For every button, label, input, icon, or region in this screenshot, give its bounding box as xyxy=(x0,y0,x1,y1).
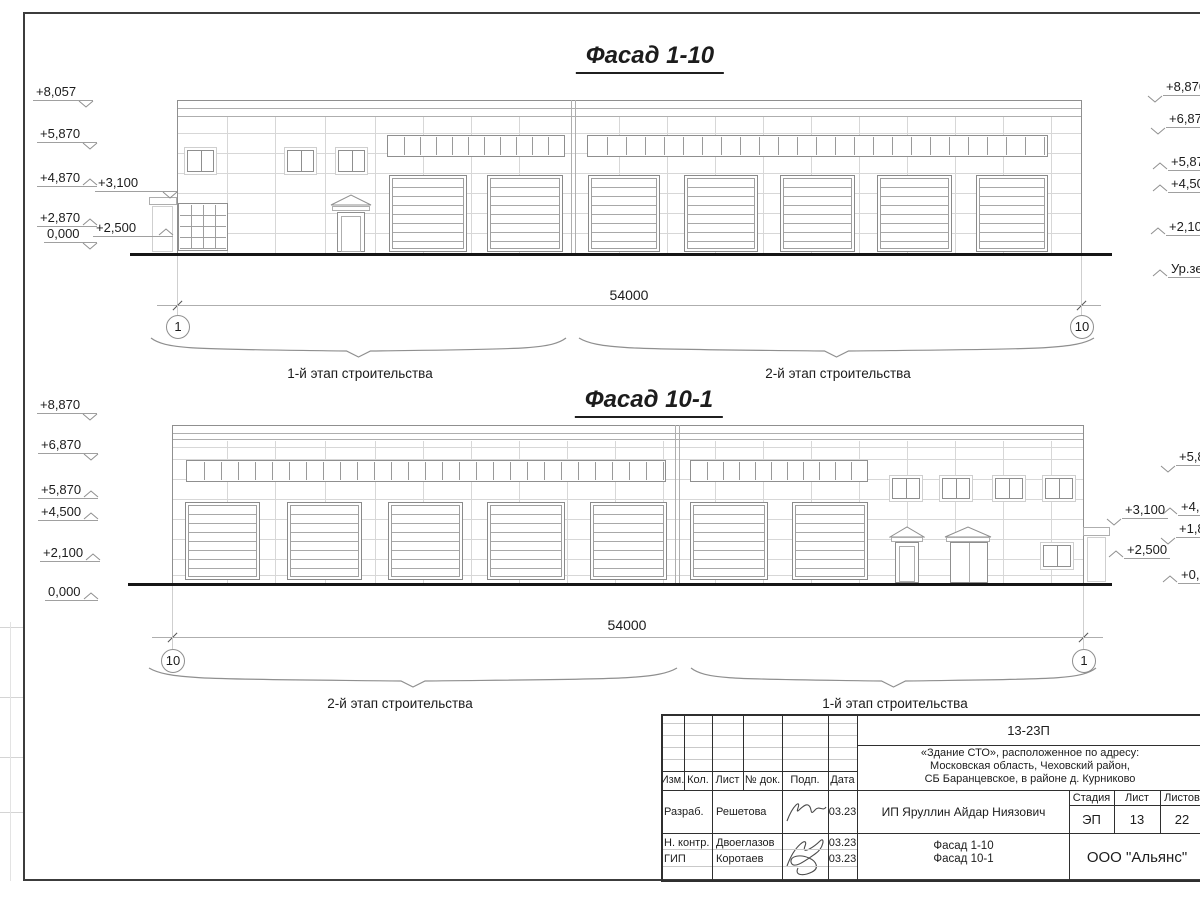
door-leaf xyxy=(899,546,915,582)
row-role: Разраб. xyxy=(664,804,711,820)
door-head xyxy=(332,206,370,211)
facade-1-10-title: Фасад 1-10 xyxy=(576,42,724,74)
window-mullion xyxy=(1059,479,1060,498)
row-name: Коротаев xyxy=(716,851,780,867)
porch xyxy=(1087,537,1106,582)
ground-line xyxy=(128,583,1112,586)
ribbon-panes xyxy=(389,137,563,155)
window-mullion xyxy=(956,479,957,498)
window-mullion xyxy=(352,151,353,171)
door-pediment-icon xyxy=(330,194,372,206)
window-mullion xyxy=(1057,546,1058,566)
ribbon-panes xyxy=(188,462,664,480)
row-date: 03.23 xyxy=(828,851,857,867)
expansion-joint xyxy=(675,425,676,583)
garage-door-slats xyxy=(880,178,949,249)
titleblock-code: 13-23П xyxy=(857,716,1200,744)
level-arrow-down-icon xyxy=(82,142,98,150)
level-mark: +2,100 xyxy=(40,546,100,562)
col-kol: Кол. xyxy=(684,772,712,789)
stage-label: Стадия xyxy=(1069,792,1114,805)
level-arrow-down-icon xyxy=(1147,95,1163,103)
row-name: Решетова xyxy=(716,804,780,820)
garage-door-slats xyxy=(188,505,257,577)
level-arrow-down-icon xyxy=(1106,518,1122,526)
level-mark: +6,870 xyxy=(38,438,98,454)
level-mark: +2,870 xyxy=(37,211,97,227)
drawing-line xyxy=(1083,637,1084,649)
panel-joint xyxy=(1051,117,1052,253)
drawing-line xyxy=(743,715,744,791)
col-ndok: № док. xyxy=(743,772,782,789)
level-mark: +2,500 xyxy=(93,221,173,237)
panel-joint xyxy=(375,117,376,253)
level-arrow-down-icon xyxy=(82,242,98,250)
garage-door-slats xyxy=(490,178,560,249)
sheets-total: 22 xyxy=(1160,806,1200,832)
titleblock-border xyxy=(661,714,1200,716)
stage-label: 2-й этап строительства xyxy=(327,696,472,711)
sheet-number: 13 xyxy=(1114,806,1160,832)
level-mark: Ур.зе xyxy=(1168,262,1200,278)
margin-line xyxy=(0,627,23,628)
window-mullion xyxy=(301,151,302,171)
level-arrow-up-icon xyxy=(1152,269,1168,277)
drawing-name-line: Фасад 1-10 xyxy=(858,840,1069,853)
axis-marker: 1 xyxy=(1072,649,1096,673)
ground-line xyxy=(130,253,1112,256)
level-mark: 0,000 xyxy=(45,585,98,601)
expansion-joint xyxy=(575,100,576,253)
level-arrow-up-icon xyxy=(85,553,101,561)
panel-joint xyxy=(325,117,326,253)
dimension-label: 54000 xyxy=(610,287,649,303)
drawing-line xyxy=(172,433,1083,434)
level-arrow-up-icon xyxy=(158,228,174,236)
row-date: 03.23 xyxy=(828,804,857,820)
level-mark: +5,870 xyxy=(37,127,97,143)
titleblock-project: «Здание СТО», расположенное по адресу: М… xyxy=(860,747,1200,786)
drawing-line xyxy=(177,305,178,315)
signature xyxy=(784,795,828,829)
extension-line xyxy=(1083,586,1084,641)
canopy-slab xyxy=(1083,527,1110,536)
garage-door-slats xyxy=(290,505,359,577)
ribbon-panes xyxy=(692,462,866,480)
level-arrow-down-icon xyxy=(1150,127,1166,135)
level-mark: +4,8 xyxy=(1178,500,1200,516)
level-mark: +5,8 xyxy=(1176,450,1200,466)
drawing-line xyxy=(177,108,1081,109)
stage-label: 1-й этап строительства xyxy=(287,366,432,381)
drawing-line xyxy=(857,745,1200,746)
stage-brace xyxy=(150,336,567,358)
building-outline xyxy=(1083,425,1084,583)
level-arrow-down-icon xyxy=(1160,465,1176,473)
project-line: Московская область, Чеховский район, xyxy=(860,760,1200,773)
window-mullion xyxy=(1009,479,1010,498)
level-mark: +1,8 xyxy=(1176,522,1200,538)
building-outline xyxy=(172,425,1083,426)
project-line: СБ Баранцевское, в районе д. Курниково xyxy=(860,773,1200,786)
drawing-line xyxy=(1069,791,1070,881)
level-mark: +2,500 xyxy=(1124,543,1170,559)
garage-door-slats xyxy=(391,505,460,577)
level-mark: +0,8 xyxy=(1178,568,1200,584)
drawing-line xyxy=(712,715,713,881)
drawing-line xyxy=(172,637,173,649)
level-arrow-down-icon xyxy=(83,453,99,461)
level-arrow-down-icon xyxy=(1160,537,1176,545)
col-data: Дата xyxy=(828,772,857,789)
glazed-grid-panes xyxy=(180,205,226,249)
drawing-line xyxy=(857,715,858,881)
level-arrow-down-icon xyxy=(82,413,98,421)
level-arrow-up-icon xyxy=(1150,227,1166,235)
garage-door-slats xyxy=(593,505,664,577)
dimension-line xyxy=(152,637,1103,638)
level-mark: +4,870 xyxy=(37,171,97,187)
door-mullion xyxy=(969,543,970,582)
dimension-line xyxy=(157,305,1101,306)
expansion-joint xyxy=(679,425,680,583)
margin-line xyxy=(0,812,23,813)
axis-marker: 1 xyxy=(166,315,190,339)
level-mark: +3,100 xyxy=(95,176,177,192)
panel-joint xyxy=(1003,441,1004,583)
garage-door-slats xyxy=(783,178,852,249)
drawing-line xyxy=(661,833,1200,834)
axis-marker: 10 xyxy=(161,649,185,673)
level-arrow-up-icon xyxy=(83,490,99,498)
col-podp: Подп. xyxy=(782,772,828,789)
level-mark: +8,057 xyxy=(33,85,93,101)
titleblock-border xyxy=(661,880,1200,882)
col-list: Лист xyxy=(712,772,743,789)
stage-brace xyxy=(690,666,1097,688)
garage-door-slats xyxy=(687,178,755,249)
signature xyxy=(782,832,828,884)
stage-brace xyxy=(578,336,1095,358)
door-leaf xyxy=(341,216,361,252)
drawing-name-line: Фасад 10-1 xyxy=(858,853,1069,866)
extension-line xyxy=(172,586,173,641)
building-outline xyxy=(172,425,173,583)
building-outline xyxy=(177,100,1081,101)
level-mark: +4,50 xyxy=(1168,177,1200,193)
garage-door-slats xyxy=(979,178,1045,249)
drawing-line xyxy=(828,715,829,881)
drawing-line xyxy=(684,715,685,791)
level-arrow-down-icon xyxy=(162,191,178,199)
window-mullion xyxy=(201,151,202,171)
margin-line xyxy=(10,622,11,881)
stage-label: 1-й этап строительства xyxy=(822,696,967,711)
drawing-line xyxy=(1069,805,1200,806)
facade-10-1-title: Фасад 10-1 xyxy=(575,386,723,418)
ribbon-panes xyxy=(589,137,1046,155)
dimension-label: 54000 xyxy=(608,617,647,633)
panel-joint xyxy=(275,117,276,253)
drawing-line xyxy=(1081,305,1082,315)
level-mark: +8,870 xyxy=(37,398,97,414)
garage-door-slats xyxy=(795,505,865,577)
margin-line xyxy=(0,757,23,758)
garage-door-slats xyxy=(591,178,657,249)
level-arrow-up-icon xyxy=(1152,162,1168,170)
level-mark: +4,500 xyxy=(38,505,98,521)
level-mark: +8,870 xyxy=(1163,80,1200,96)
level-mark: +2,10 xyxy=(1166,220,1200,236)
siding-line xyxy=(172,447,1083,448)
level-mark: +6,870 xyxy=(1166,112,1200,128)
project-line: «Здание СТО», расположенное по адресу: xyxy=(860,747,1200,760)
garage-door-slats xyxy=(490,505,562,577)
titleblock-border xyxy=(661,714,663,882)
client-cell: ИП Яруллин Айдар Ниязович xyxy=(858,792,1069,833)
row-role: ГИП xyxy=(664,851,711,867)
level-arrow-up-icon xyxy=(1162,507,1178,515)
drawing-line xyxy=(782,715,783,881)
window-mullion xyxy=(906,479,907,498)
margin-line xyxy=(0,697,23,698)
garage-door-slats xyxy=(693,505,765,577)
stage-value: ЭП xyxy=(1069,806,1114,832)
drawing-line xyxy=(177,116,1081,117)
drawing-line xyxy=(661,790,1200,791)
level-arrow-up-icon xyxy=(1152,184,1168,192)
sheet-label: Лист xyxy=(1114,792,1160,805)
sheets-label: Листов xyxy=(1160,792,1200,805)
level-arrow-up-icon xyxy=(83,592,99,600)
extension-line xyxy=(1081,256,1082,310)
drawing-name-cell: Фасад 1-10 Фасад 10-1 xyxy=(858,840,1069,866)
drawing-line xyxy=(1160,791,1161,833)
drawing-line xyxy=(172,439,1083,440)
stage-brace xyxy=(148,666,678,688)
level-mark: +5,87 xyxy=(1168,155,1200,171)
axis-marker: 10 xyxy=(1070,315,1094,339)
building-outline xyxy=(1081,100,1082,253)
drawing-line xyxy=(1114,791,1115,833)
level-mark: 0,000 xyxy=(44,227,97,243)
extension-line xyxy=(177,256,178,310)
level-arrow-up-icon xyxy=(83,512,99,520)
level-mark: +5,870 xyxy=(38,483,98,499)
level-arrow-up-icon xyxy=(1108,550,1124,558)
level-arrow-down-icon xyxy=(78,100,94,108)
organization-cell: ООО "Альянс" xyxy=(1070,834,1200,881)
expansion-joint xyxy=(571,100,572,253)
col-izm: Изм. xyxy=(661,772,684,789)
garage-door-slats xyxy=(392,178,464,249)
drawing-sheet: Фасад 1-10 Фасад 10-1 13-23П «Здание СТО… xyxy=(0,0,1200,900)
level-arrow-up-icon xyxy=(1162,575,1178,583)
siding-line xyxy=(177,133,1081,134)
stage-label: 2-й этап строительства xyxy=(765,366,910,381)
